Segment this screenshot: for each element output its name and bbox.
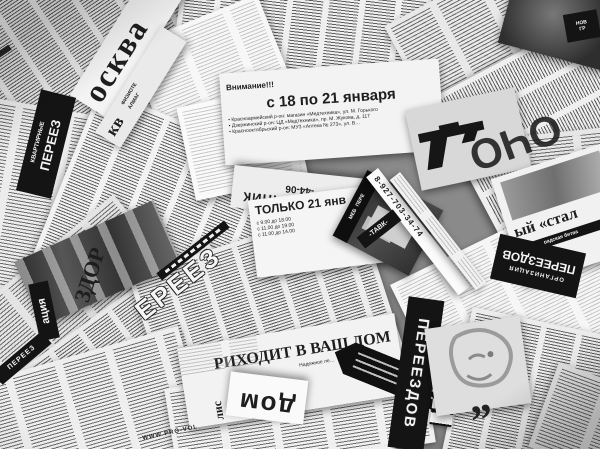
kv-fragment: кв <box>102 113 129 140</box>
attention-text: Внимание!!! <box>226 80 274 92</box>
atsiya-text: ация <box>35 297 52 325</box>
newspaper-collage: НОВ ГР осква кв ФИЗИОТЕ АЛМАГ КВАРТИРНЫЕ… <box>0 0 600 449</box>
truck-label-text: ПЕРЕ <box>355 192 367 207</box>
truck-label-text: МЕБ <box>348 208 359 221</box>
chip-text: ГР <box>579 25 586 32</box>
corner-label-chip: НОВ ГР <box>563 9 600 42</box>
dom-scrap: дом <box>226 371 309 424</box>
